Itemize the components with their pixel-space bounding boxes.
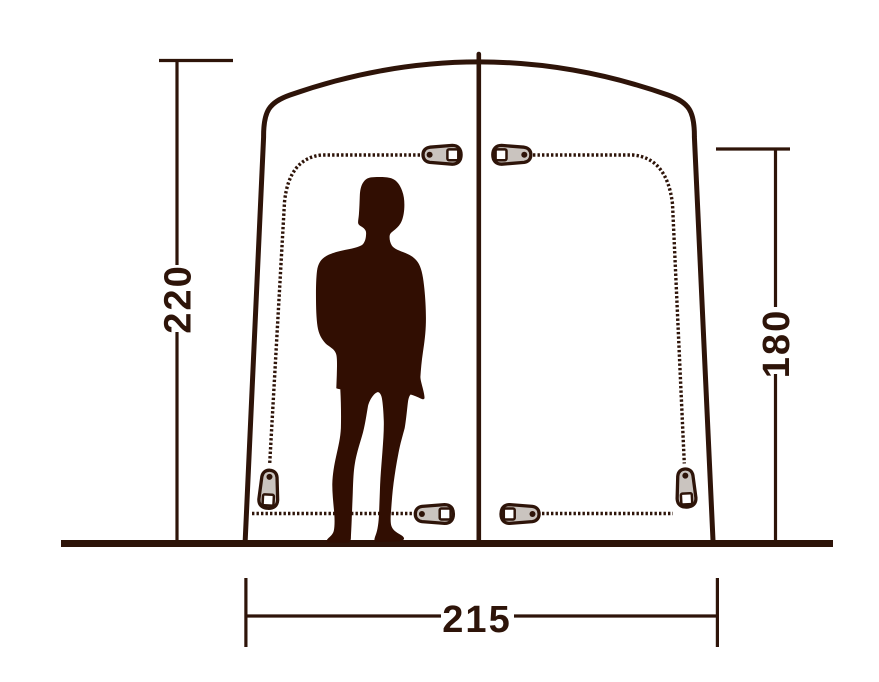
svg-text:180: 180 [756,309,798,378]
svg-text:215: 215 [442,599,511,641]
svg-text:220: 220 [157,264,199,333]
